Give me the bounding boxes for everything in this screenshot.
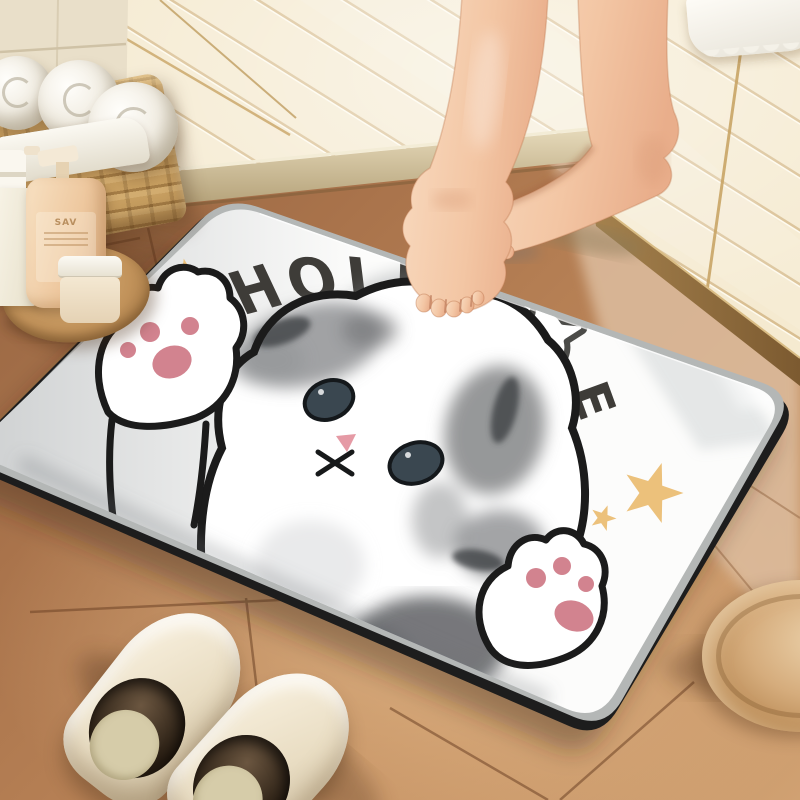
cream-jar-lid	[58, 256, 122, 278]
heel-shading	[636, 136, 668, 184]
soap-label-text: SAV	[55, 218, 78, 228]
hand-towel	[685, 0, 800, 60]
person-legs	[403, 0, 679, 317]
bathroom-scene: HOLD E	[0, 0, 800, 800]
cream-jar	[60, 277, 120, 323]
leg-front	[403, 0, 548, 311]
ankle-shading	[432, 190, 472, 210]
